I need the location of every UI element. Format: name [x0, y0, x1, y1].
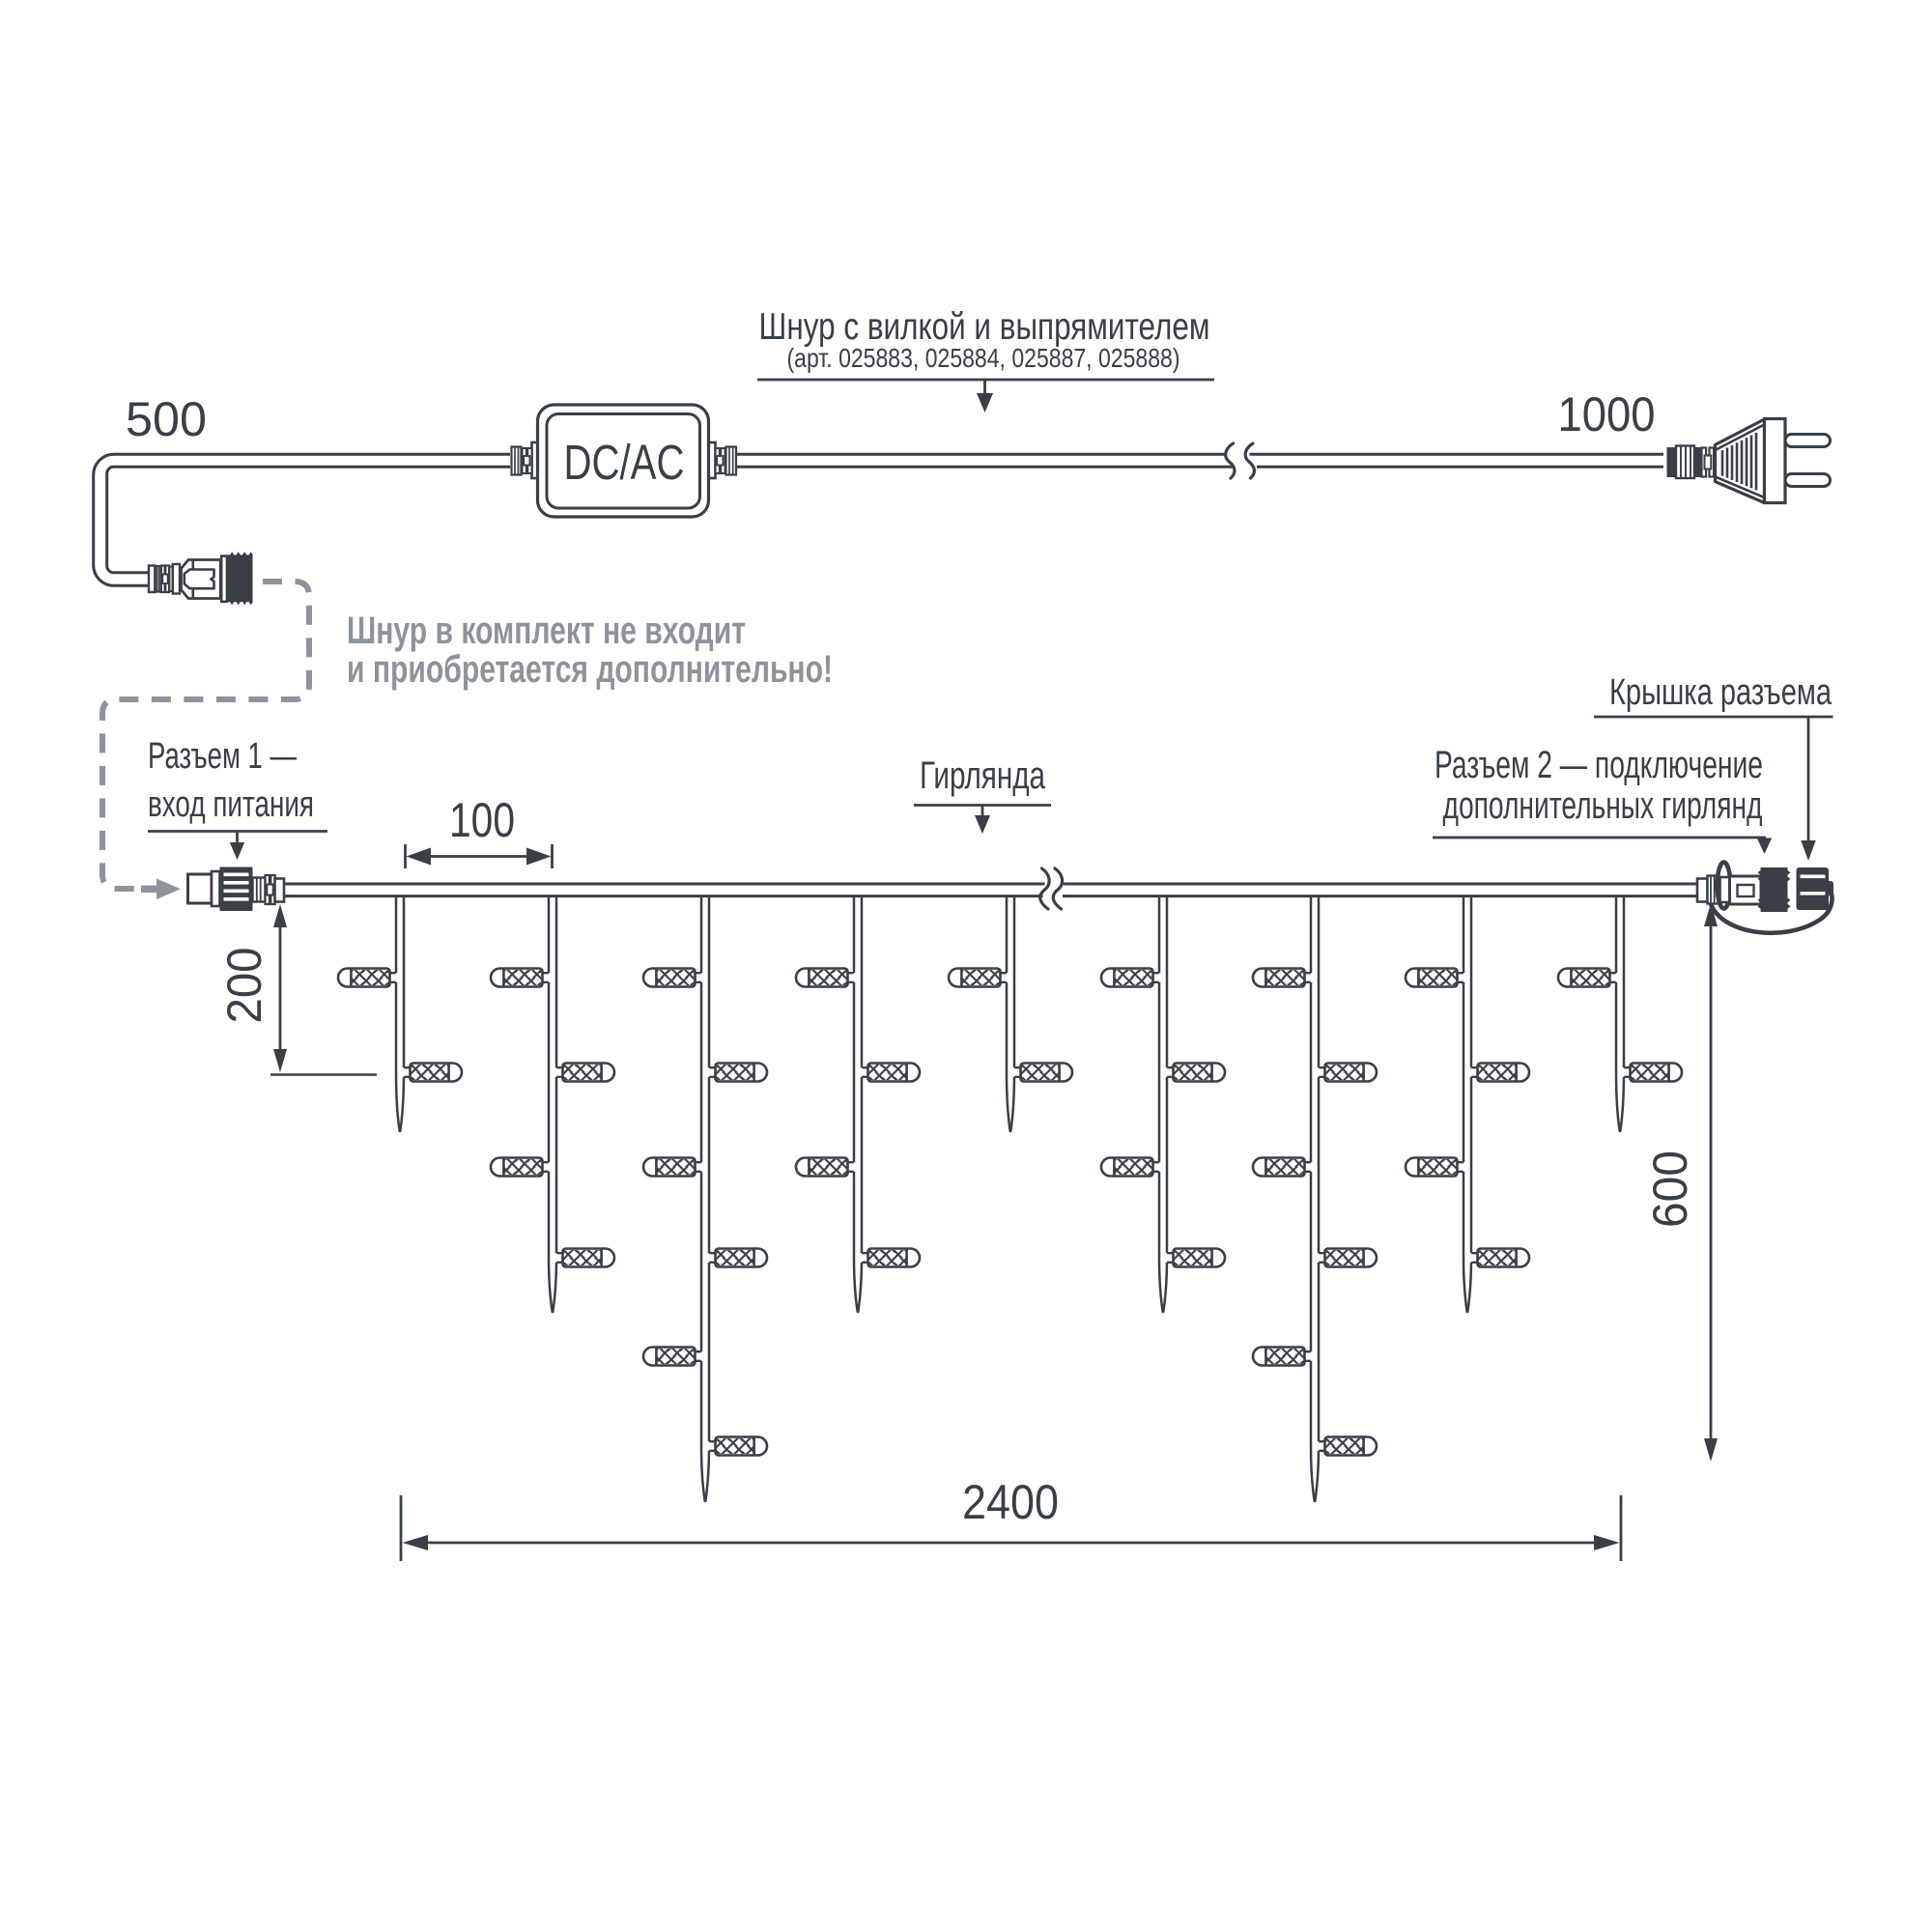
svg-text:Шнур в комплект не входит: Шнур в комплект не входит: [347, 610, 746, 652]
svg-text:Разъем 2 — подключение: Разъем 2 — подключение: [1435, 744, 1763, 786]
svg-text:(арт. 025883, 025884, 025887,: (арт. 025883, 025884, 025887, 025888): [787, 343, 1180, 373]
svg-text:DC/AC: DC/AC: [564, 435, 685, 490]
svg-text:Шнур с вилкой и выпрямителем: Шнур с вилкой и выпрямителем: [759, 306, 1210, 348]
svg-text:Крышка разъема: Крышка разъема: [1609, 672, 1833, 713]
svg-text:600: 600: [1643, 1151, 1697, 1228]
svg-text:Разъем 1 —: Разъем 1 —: [148, 736, 297, 777]
svg-text:500: 500: [126, 392, 207, 446]
svg-text:1000: 1000: [1558, 387, 1656, 441]
svg-text:2400: 2400: [962, 1475, 1059, 1529]
svg-text:100: 100: [449, 793, 515, 847]
svg-text:и приобретается дополнительно!: и приобретается дополнительно!: [347, 648, 833, 691]
svg-text:вход питания: вход питания: [148, 784, 314, 825]
svg-text:Гирлянда: Гирлянда: [920, 754, 1046, 797]
svg-text:200: 200: [217, 948, 271, 1024]
svg-text:дополнительных гирлянд: дополнительных гирлянд: [1443, 784, 1763, 827]
